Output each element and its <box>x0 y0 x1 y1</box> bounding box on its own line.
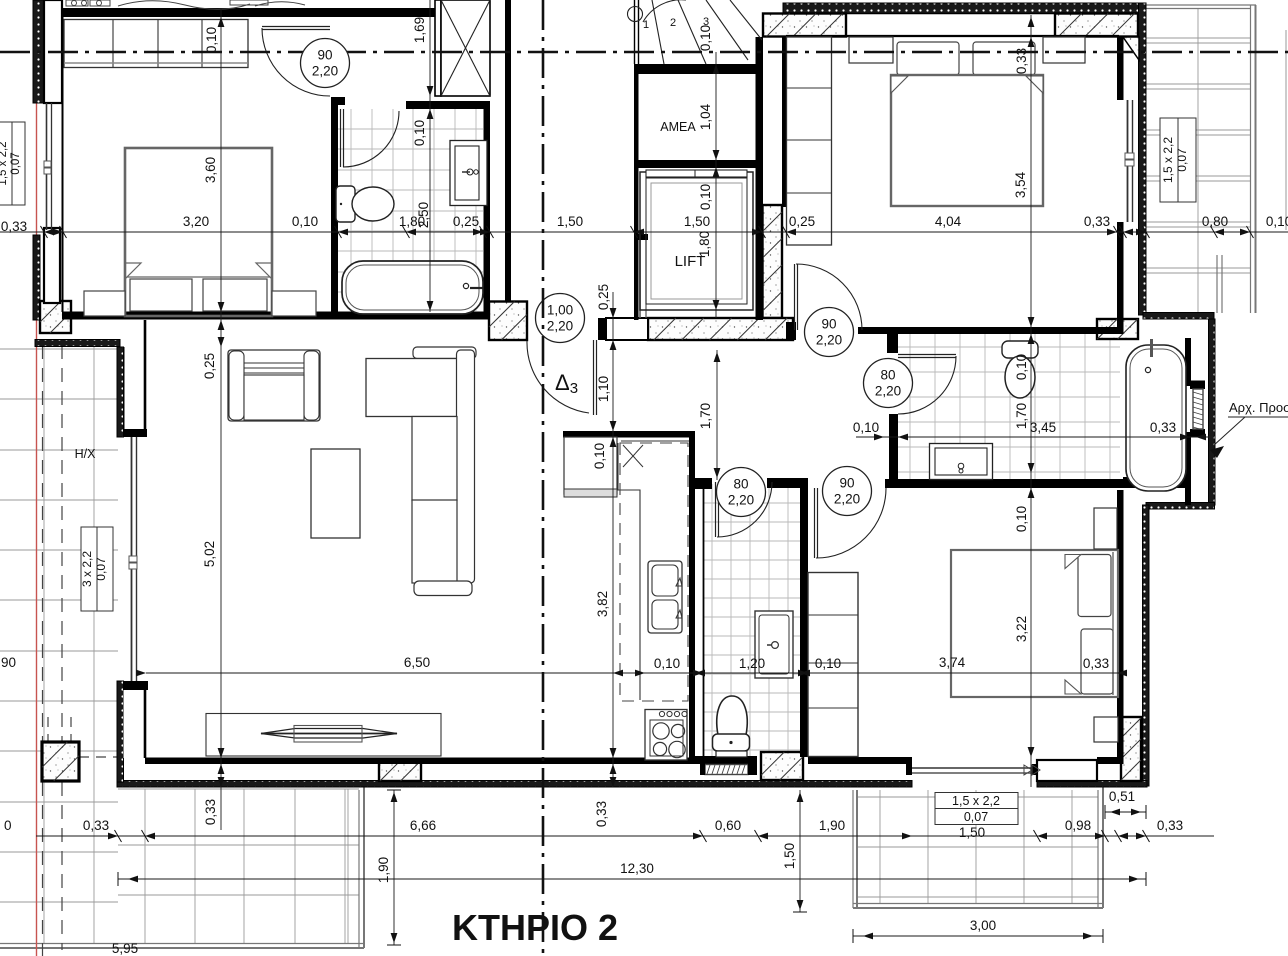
svg-text:0,33: 0,33 <box>1 219 27 234</box>
svg-text:1,10: 1,10 <box>596 376 611 402</box>
svg-text:0,33: 0,33 <box>1150 420 1176 435</box>
svg-text:90: 90 <box>317 48 332 63</box>
svg-text:90: 90 <box>839 476 854 491</box>
svg-text:2,20: 2,20 <box>728 493 754 508</box>
svg-text:6,66: 6,66 <box>410 818 436 833</box>
svg-text:1,69: 1,69 <box>412 17 427 43</box>
svg-text:1,5 x 2,2: 1,5 x 2,2 <box>0 141 9 185</box>
svg-text:0,60: 0,60 <box>715 818 741 833</box>
svg-text:80: 80 <box>880 368 895 383</box>
svg-text:5,95: 5,95 <box>112 941 138 956</box>
svg-text:0: 0 <box>4 818 12 833</box>
svg-text:0,33: 0,33 <box>1083 656 1109 671</box>
svg-text:3,20: 3,20 <box>183 214 209 229</box>
svg-text:5,02: 5,02 <box>202 541 217 567</box>
svg-text:3,54: 3,54 <box>1013 171 1028 198</box>
svg-text:0,10: 0,10 <box>698 25 713 51</box>
svg-text:1,50: 1,50 <box>557 214 583 229</box>
svg-text:0,10: 0,10 <box>698 184 713 210</box>
svg-text:1,20: 1,20 <box>739 656 765 671</box>
svg-text:2,50: 2,50 <box>416 202 431 228</box>
svg-text:ΚΤΗΡΙΟ 2: ΚΤΗΡΙΟ 2 <box>452 907 618 948</box>
svg-text:1,50: 1,50 <box>782 843 797 869</box>
svg-text:0,80: 0,80 <box>1202 214 1228 229</box>
svg-text:0,25: 0,25 <box>202 353 217 379</box>
svg-text:3,60: 3,60 <box>203 157 218 183</box>
svg-text:0,33: 0,33 <box>1157 818 1183 833</box>
svg-text:2,20: 2,20 <box>312 64 338 79</box>
svg-text:2,20: 2,20 <box>816 333 842 348</box>
svg-text:3,45: 3,45 <box>1030 420 1056 435</box>
svg-text:0,98: 0,98 <box>1065 818 1091 833</box>
svg-text:0,10: 0,10 <box>412 120 427 146</box>
svg-text:80: 80 <box>733 477 748 492</box>
svg-text:1,04: 1,04 <box>698 103 713 130</box>
svg-text:2,20: 2,20 <box>875 384 901 399</box>
svg-text:0,33: 0,33 <box>594 801 609 827</box>
svg-text:1,70: 1,70 <box>1014 403 1029 429</box>
svg-text:0,33: 0,33 <box>1014 48 1029 74</box>
svg-text:4,04: 4,04 <box>935 214 962 229</box>
svg-text:0,07: 0,07 <box>10 152 22 174</box>
svg-text:1,70: 1,70 <box>698 403 713 429</box>
svg-text:0,51: 0,51 <box>1109 789 1135 804</box>
svg-text:1,90: 1,90 <box>819 818 845 833</box>
svg-text:3 x 2,2: 3 x 2,2 <box>80 551 94 587</box>
svg-text:3,74: 3,74 <box>939 655 966 670</box>
svg-text:0,33: 0,33 <box>203 799 218 825</box>
svg-text:3,82: 3,82 <box>595 591 610 617</box>
svg-text:1,5 x 2,2: 1,5 x 2,2 <box>952 794 1000 808</box>
svg-text:0,07: 0,07 <box>1175 148 1189 172</box>
svg-text:1: 1 <box>643 19 649 31</box>
svg-text:3,00: 3,00 <box>970 918 996 933</box>
svg-text:0,10: 0,10 <box>204 27 219 53</box>
svg-text:1,80: 1,80 <box>697 231 712 257</box>
svg-text:1,50: 1,50 <box>959 825 985 840</box>
svg-text:6,50: 6,50 <box>404 655 430 670</box>
svg-text:3,22: 3,22 <box>1014 616 1029 642</box>
svg-text:2,20: 2,20 <box>834 492 860 507</box>
svg-text:0,07: 0,07 <box>964 810 988 824</box>
svg-text:1,00: 1,00 <box>547 303 573 318</box>
svg-text:0,10: 0,10 <box>654 656 680 671</box>
svg-text:2,20: 2,20 <box>547 319 573 334</box>
svg-text:90: 90 <box>1 655 16 670</box>
svg-text:0,10: 0,10 <box>1014 354 1029 380</box>
svg-text:H/X: H/X <box>75 447 97 461</box>
svg-text:Αρχ. Προσ: Αρχ. Προσ <box>1229 400 1288 415</box>
svg-text:1,5 x 2,2: 1,5 x 2,2 <box>1161 137 1175 183</box>
svg-text:0,10: 0,10 <box>1266 214 1288 229</box>
svg-text:1,50: 1,50 <box>684 214 710 229</box>
svg-text:0,25: 0,25 <box>789 214 815 229</box>
svg-text:0,10: 0,10 <box>592 443 607 469</box>
svg-text:0,10: 0,10 <box>292 214 318 229</box>
svg-text:0,25: 0,25 <box>596 284 611 310</box>
svg-text:1,90: 1,90 <box>376 857 391 883</box>
svg-text:AMEA: AMEA <box>660 120 696 134</box>
svg-text:0,33: 0,33 <box>1084 214 1110 229</box>
svg-text:0,33: 0,33 <box>83 818 109 833</box>
svg-text:0,10: 0,10 <box>815 656 841 671</box>
svg-text:0,25: 0,25 <box>453 214 479 229</box>
svg-text:0,10: 0,10 <box>1014 506 1029 532</box>
svg-text:12,30: 12,30 <box>620 861 654 876</box>
svg-text:90: 90 <box>821 317 836 332</box>
svg-text:0,10: 0,10 <box>853 420 879 435</box>
svg-text:2: 2 <box>670 17 676 29</box>
svg-text:0,07: 0,07 <box>94 557 108 581</box>
